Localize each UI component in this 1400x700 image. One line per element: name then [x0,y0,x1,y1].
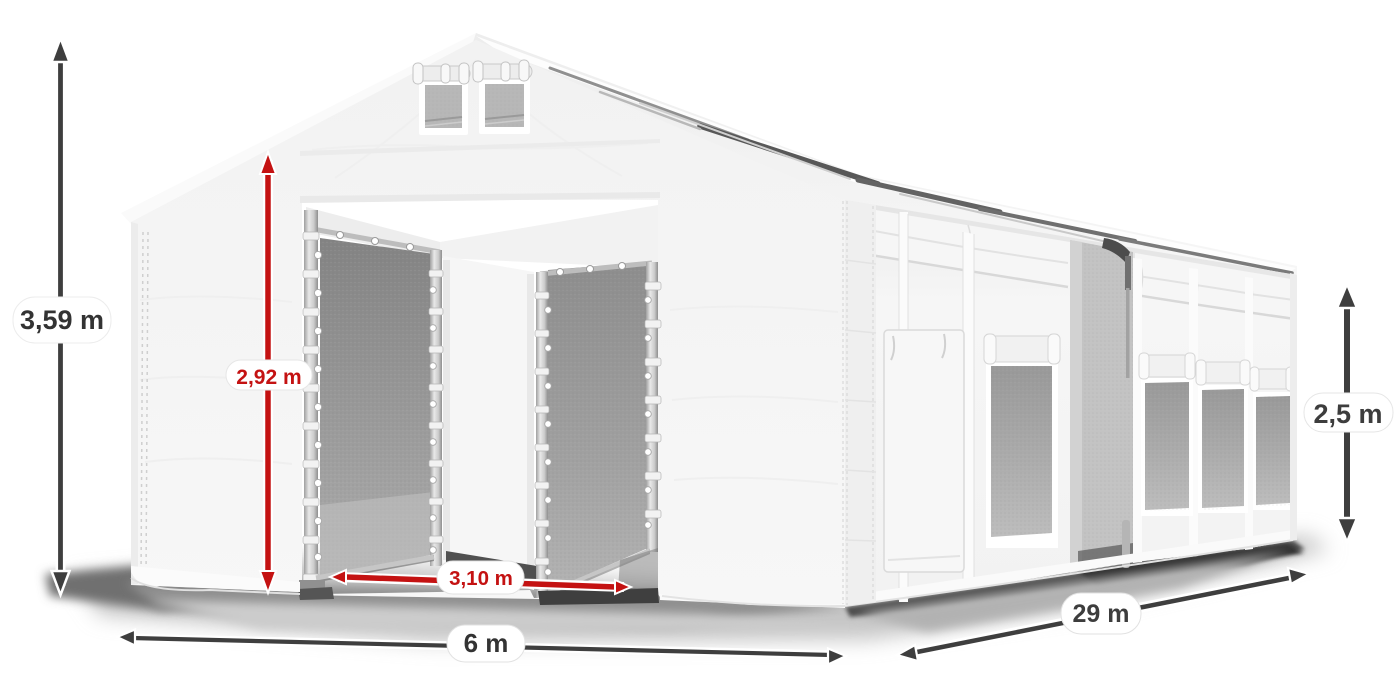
svg-text:3,10 m: 3,10 m [449,567,513,590]
svg-text:6 m: 6 m [464,628,509,658]
svg-text:29 m: 29 m [1073,600,1130,628]
svg-text:2,5 m: 2,5 m [1313,399,1382,429]
svg-text:2,92 m: 2,92 m [236,366,301,389]
svg-text:3,59 m: 3,59 m [20,305,104,335]
